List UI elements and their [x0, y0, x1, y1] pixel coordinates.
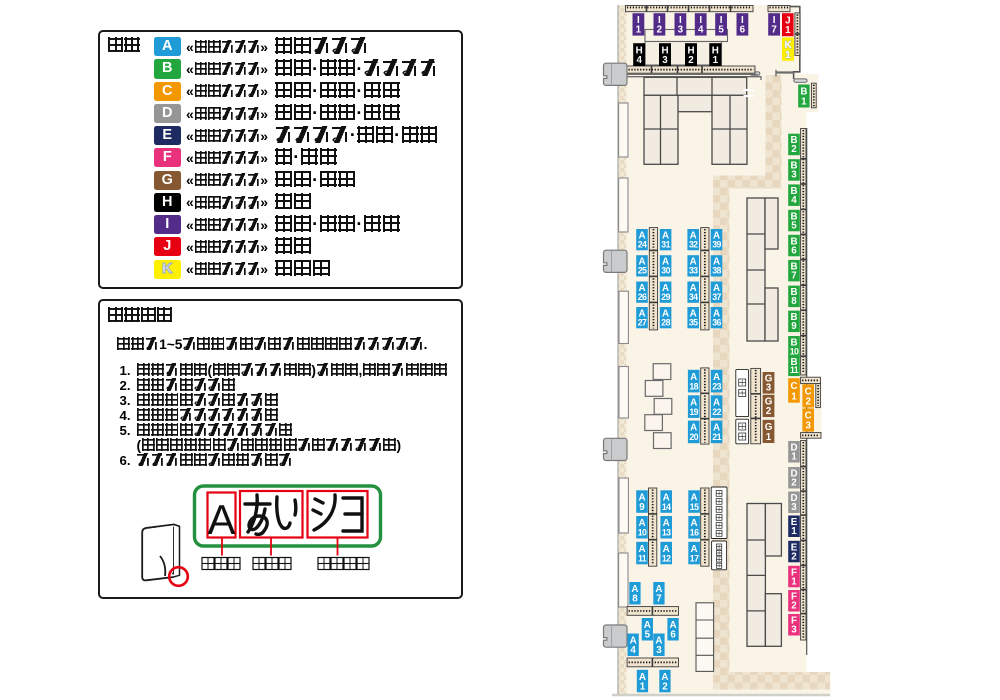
svg-text:8: 8 [632, 594, 638, 605]
svg-text:1: 1 [713, 55, 719, 66]
svg-text:39: 39 [712, 239, 721, 249]
svg-text:6: 6 [740, 25, 746, 36]
svg-text:36: 36 [712, 317, 721, 327]
svg-text:1: 1 [636, 25, 642, 36]
svg-text:2: 2 [791, 551, 797, 562]
svg-text:9: 9 [791, 321, 797, 332]
svg-text:2: 2 [791, 478, 797, 489]
svg-text:23: 23 [712, 381, 721, 391]
svg-text:3: 3 [791, 170, 797, 181]
svg-text:3: 3 [662, 55, 668, 66]
svg-text:10: 10 [638, 528, 647, 538]
svg-text:6: 6 [670, 630, 676, 641]
svg-text:5: 5 [645, 630, 651, 641]
svg-text:1: 1 [640, 681, 646, 692]
svg-text:33: 33 [689, 266, 698, 276]
svg-text:25: 25 [638, 266, 647, 276]
svg-text:22: 22 [712, 407, 721, 417]
svg-text:1: 1 [791, 452, 797, 463]
svg-text:3: 3 [766, 383, 772, 394]
svg-text:3: 3 [791, 625, 797, 636]
svg-text:1: 1 [791, 392, 797, 403]
svg-text:1: 1 [785, 25, 791, 36]
svg-text:4: 4 [636, 55, 642, 66]
svg-text:15: 15 [690, 502, 699, 512]
svg-text:7: 7 [791, 270, 797, 281]
svg-text:16: 16 [690, 528, 699, 538]
svg-text:1: 1 [791, 576, 797, 587]
svg-text:17: 17 [690, 553, 699, 563]
svg-text:38: 38 [712, 266, 721, 276]
svg-text:24: 24 [638, 239, 647, 249]
svg-text:1: 1 [785, 50, 791, 61]
svg-text:37: 37 [712, 292, 721, 302]
svg-text:8: 8 [791, 296, 797, 307]
svg-text:14: 14 [662, 502, 671, 512]
svg-text:19: 19 [689, 407, 698, 417]
svg-text:9: 9 [639, 502, 645, 513]
svg-text:5: 5 [791, 220, 797, 231]
svg-text:10: 10 [790, 347, 799, 357]
svg-text:4: 4 [630, 645, 636, 656]
svg-text:3: 3 [656, 645, 662, 656]
svg-text:7: 7 [771, 25, 777, 36]
svg-text:7: 7 [656, 594, 662, 605]
svg-text:31: 31 [661, 239, 670, 249]
svg-text:1: 1 [766, 432, 772, 443]
svg-text:2: 2 [791, 144, 797, 155]
svg-text:35: 35 [689, 317, 698, 327]
svg-text:27: 27 [638, 317, 647, 327]
svg-text:21: 21 [712, 432, 721, 442]
svg-text:1: 1 [791, 526, 797, 537]
svg-text:30: 30 [661, 266, 670, 276]
svg-text:11: 11 [638, 553, 647, 563]
svg-text:5: 5 [718, 25, 724, 36]
svg-text:12: 12 [662, 553, 671, 563]
svg-text:13: 13 [662, 528, 671, 538]
svg-text:3: 3 [791, 502, 797, 513]
svg-text:28: 28 [661, 317, 670, 327]
svg-text:2: 2 [766, 406, 772, 417]
svg-text:4: 4 [698, 25, 704, 36]
svg-text:18: 18 [689, 381, 698, 391]
svg-text:20: 20 [689, 432, 698, 442]
svg-text:3: 3 [678, 25, 684, 36]
svg-text:2: 2 [688, 55, 694, 66]
svg-text:2: 2 [662, 681, 668, 692]
svg-text:2: 2 [805, 397, 811, 408]
svg-text:2: 2 [657, 25, 663, 36]
svg-text:2: 2 [791, 601, 797, 612]
svg-text:1: 1 [801, 97, 807, 108]
svg-text:C: C [790, 381, 797, 392]
svg-text:26: 26 [638, 292, 647, 302]
svg-text:A: A [207, 496, 235, 543]
svg-text:32: 32 [689, 239, 698, 249]
svg-text:29: 29 [661, 292, 670, 302]
svg-text:34: 34 [689, 292, 698, 302]
svg-text:11: 11 [790, 365, 799, 375]
svg-text:3: 3 [805, 421, 811, 432]
svg-text:4: 4 [791, 195, 797, 206]
svg-text:6: 6 [791, 245, 797, 256]
